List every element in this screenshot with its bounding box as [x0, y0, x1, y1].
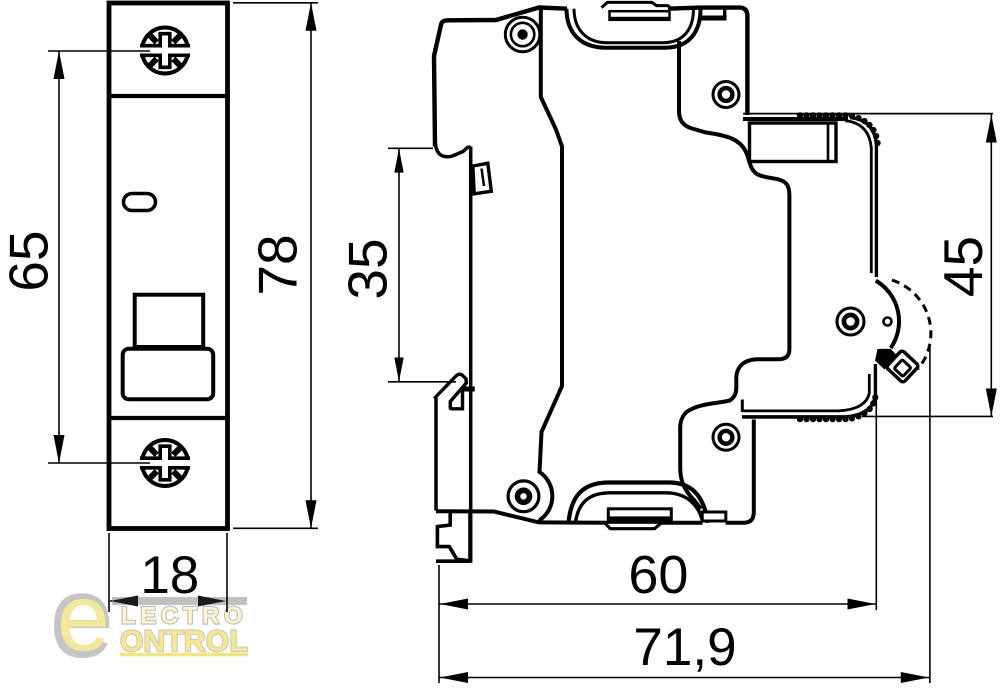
- svg-text:e: e: [57, 565, 110, 671]
- svg-text:45: 45: [932, 236, 994, 297]
- svg-text:71,9: 71,9: [633, 618, 736, 677]
- svg-text:78: 78: [247, 234, 309, 295]
- svg-text:35: 35: [337, 238, 399, 299]
- svg-text:65: 65: [0, 230, 60, 291]
- svg-text:60: 60: [628, 545, 688, 605]
- svg-text:18: 18: [140, 546, 199, 605]
